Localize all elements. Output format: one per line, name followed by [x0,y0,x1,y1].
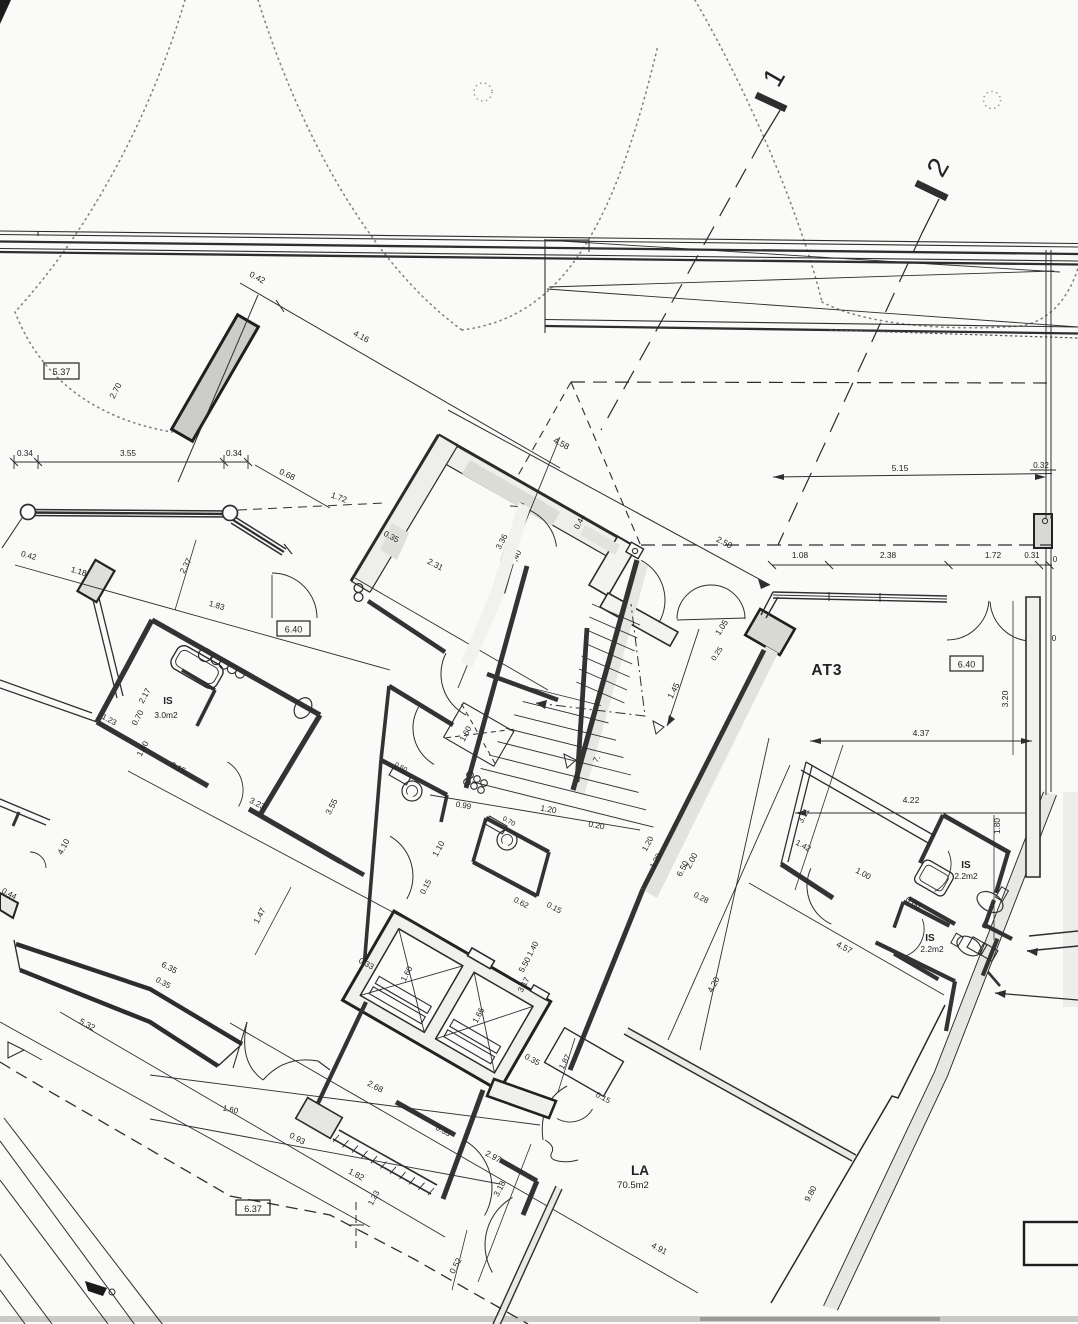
svg-text:IS: IS [961,860,971,871]
svg-text:70.5m2: 70.5m2 [617,1180,649,1191]
svg-text:IS: IS [163,696,173,707]
svg-text:6.40: 6.40 [958,660,976,670]
svg-text:4.37: 4.37 [913,728,930,738]
svg-text:6.37: 6.37 [244,1204,262,1214]
svg-text:3.0m2: 3.0m2 [154,710,178,720]
svg-text:0: 0 [1053,555,1058,564]
svg-text:1.72: 1.72 [985,550,1002,560]
svg-text:0.31: 0.31 [1024,551,1039,560]
svg-text:3.55: 3.55 [120,449,136,458]
svg-text:6.40: 6.40 [285,625,303,635]
svg-text:0: 0 [1052,634,1057,643]
svg-text:2.38: 2.38 [880,550,897,560]
svg-text:1.08: 1.08 [792,550,809,560]
svg-text:0.32: 0.32 [1033,461,1049,470]
svg-text:5.37: 5.37 [53,367,71,377]
svg-text:2.2m2: 2.2m2 [954,871,978,881]
svg-text:5.15: 5.15 [892,463,909,473]
svg-text:4.22: 4.22 [903,795,920,805]
svg-text:IS: IS [925,933,935,944]
svg-text:0.34: 0.34 [17,449,33,458]
svg-text:AT3: AT3 [811,662,842,679]
svg-text:2.2m2: 2.2m2 [920,944,944,954]
svg-text:LA: LA [631,1163,649,1178]
svg-text:0.34: 0.34 [226,449,242,458]
svg-text:3.20: 3.20 [1000,690,1010,707]
